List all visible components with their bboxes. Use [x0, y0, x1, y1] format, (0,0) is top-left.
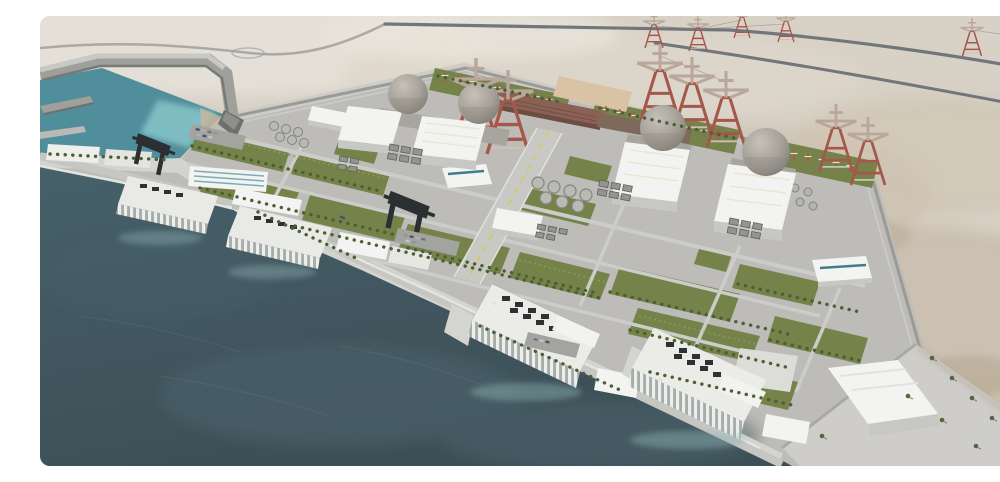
turbine-hall-2 — [412, 116, 486, 170]
scene-caption: Aerial 3D rendering of a four-unit coast… — [40, 16, 41, 17]
aerial-render-figure: Aerial 3D rendering of a four-unit coast… — [40, 16, 1000, 466]
plant-aerial-scene — [40, 16, 1000, 466]
